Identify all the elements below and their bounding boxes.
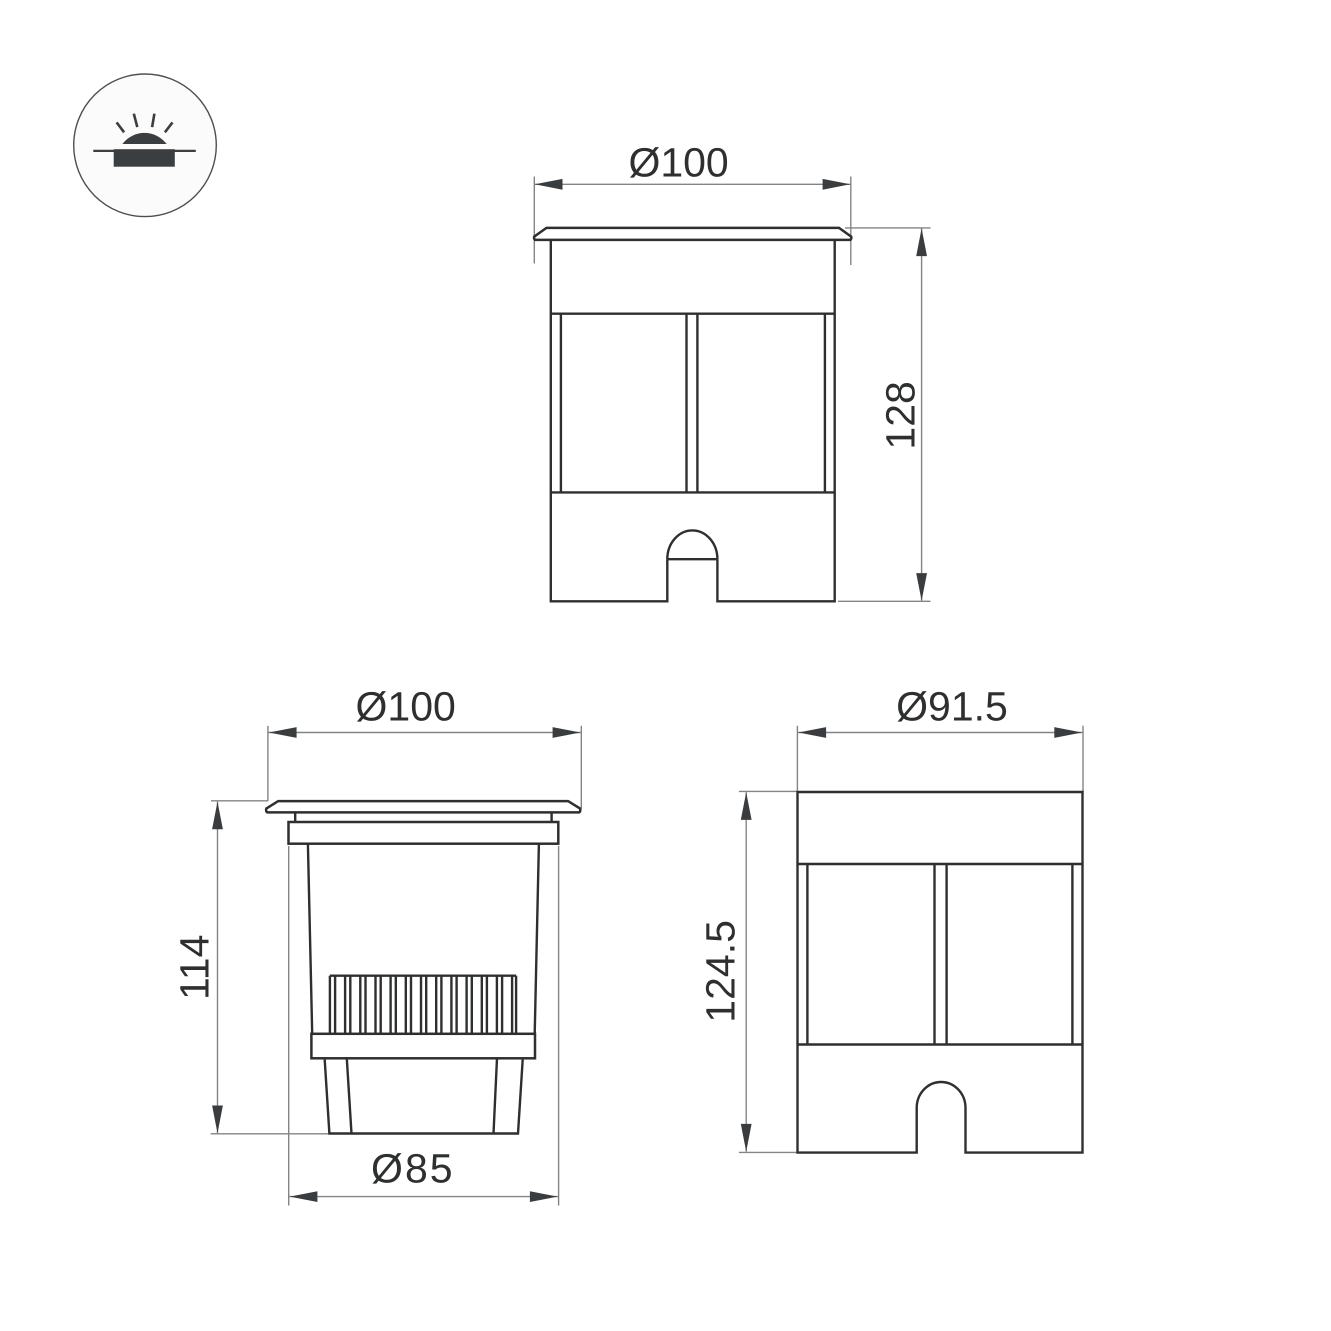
svg-text:Ø91.5: Ø91.5 — [896, 684, 1008, 730]
svg-text:Ø100: Ø100 — [628, 139, 728, 185]
svg-text:Ø85: Ø85 — [371, 1145, 455, 1191]
svg-text:128: 128 — [878, 381, 924, 449]
svg-text:Ø100: Ø100 — [356, 684, 456, 730]
svg-text:114: 114 — [172, 935, 218, 1000]
svg-text:124.5: 124.5 — [698, 920, 744, 1023]
